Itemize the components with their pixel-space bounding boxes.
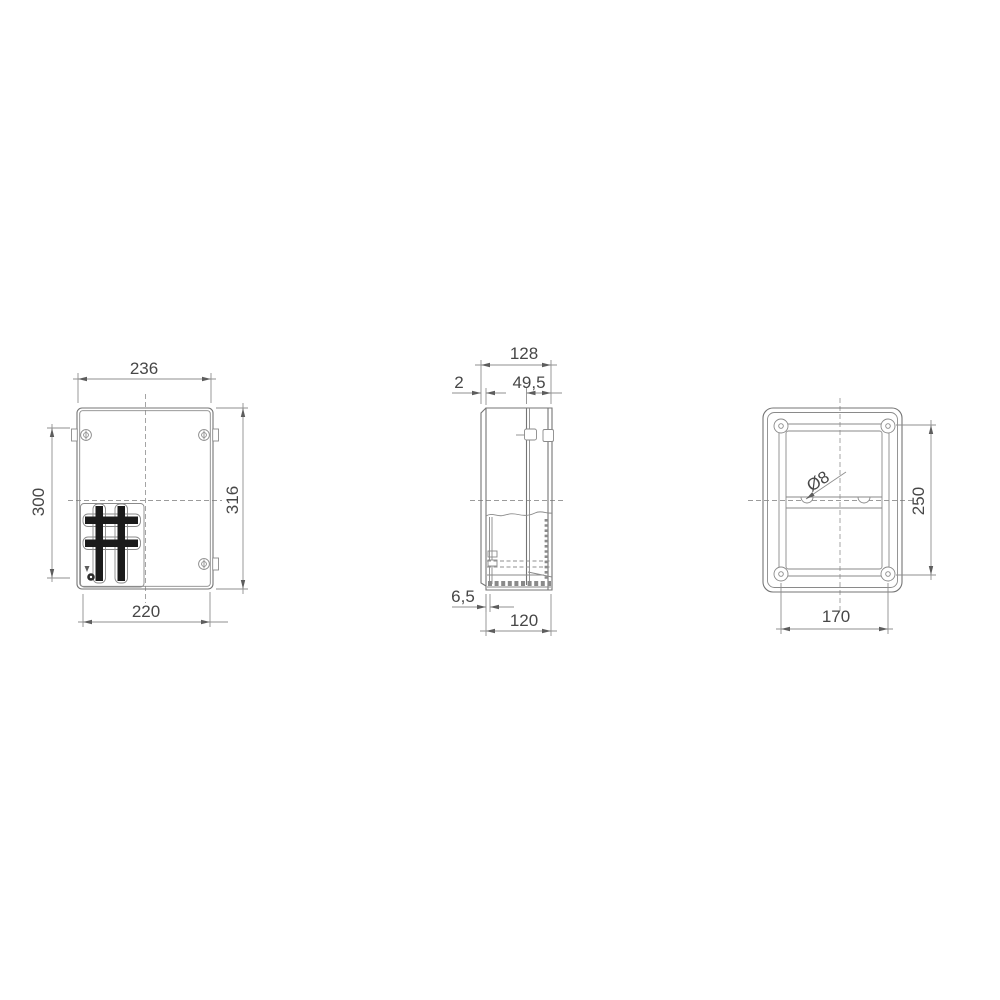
side-view: 128 2 49,5 6,5 120: [451, 344, 566, 636]
dim-label-49-5: 49,5: [512, 373, 545, 392]
dim-front-height-left: 300: [29, 424, 70, 582]
dim-side-depth-bottom: 120: [480, 594, 557, 636]
dim-label-316: 316: [223, 486, 242, 514]
dim-label-6-5: 6,5: [451, 587, 475, 606]
rib-horizontal-1: [85, 517, 138, 525]
technical-drawing: 236 316 300 220: [0, 0, 1000, 1000]
front-view: 236 316 300 220: [29, 359, 248, 627]
detail-arrow-icon: [85, 566, 90, 572]
mount-hole-top-left: [774, 419, 788, 433]
drawing-sheet: 236 316 300 220: [0, 0, 1000, 1000]
dim-side-base-offset: 6,5: [451, 587, 514, 612]
back-body-outer: [763, 408, 902, 592]
mount-hole-top-right: [881, 419, 895, 433]
dim-label-236: 236: [130, 359, 158, 378]
dim-label-120: 120: [510, 611, 538, 630]
rib-section: [81, 504, 145, 588]
screw-bottom-right: [199, 559, 210, 570]
screw-tab-bottom-right: [213, 558, 219, 570]
dim-label-250: 250: [909, 487, 928, 515]
screw-top-right: [199, 430, 210, 441]
mount-hole-bottom-right: [881, 567, 895, 581]
dim-front-height-right: 316: [216, 403, 248, 594]
dim-front-width-top: 236: [73, 359, 216, 403]
rib-horizontal-2: [85, 540, 138, 548]
dim-label-o8: Ø8: [803, 467, 832, 495]
back-view: Ø8 250 170: [748, 398, 936, 634]
dim-back-hole-spacing-horizontal: 170: [776, 583, 893, 634]
dim-label-170: 170: [822, 607, 850, 626]
side-wall-lug: [543, 430, 554, 442]
dim-side-lid-gap: 2: [452, 373, 506, 405]
dim-label-300: 300: [29, 488, 48, 516]
screw-top-left: [81, 430, 92, 441]
side-lower-section: [486, 517, 552, 590]
dim-label-128: 128: [510, 344, 538, 363]
side-break-line: [486, 512, 552, 516]
knockout-hole-right: [858, 497, 870, 503]
dim-side-cover-depth: 49,5: [512, 373, 562, 404]
side-lid-edge: [481, 408, 486, 586]
screw-tab-top-left: [72, 429, 78, 441]
back-body-inner: [768, 413, 898, 588]
dim-label-2: 2: [454, 373, 463, 392]
back-middle-rail: [786, 497, 882, 508]
dim-front-width-bottom: 220: [78, 592, 228, 627]
screw-tab-top-right: [213, 429, 219, 441]
mount-hole-bottom-left: [774, 567, 788, 581]
dim-label-220: 220: [132, 602, 160, 621]
side-latch: [525, 429, 537, 440]
back-frame-outer: [779, 424, 889, 576]
